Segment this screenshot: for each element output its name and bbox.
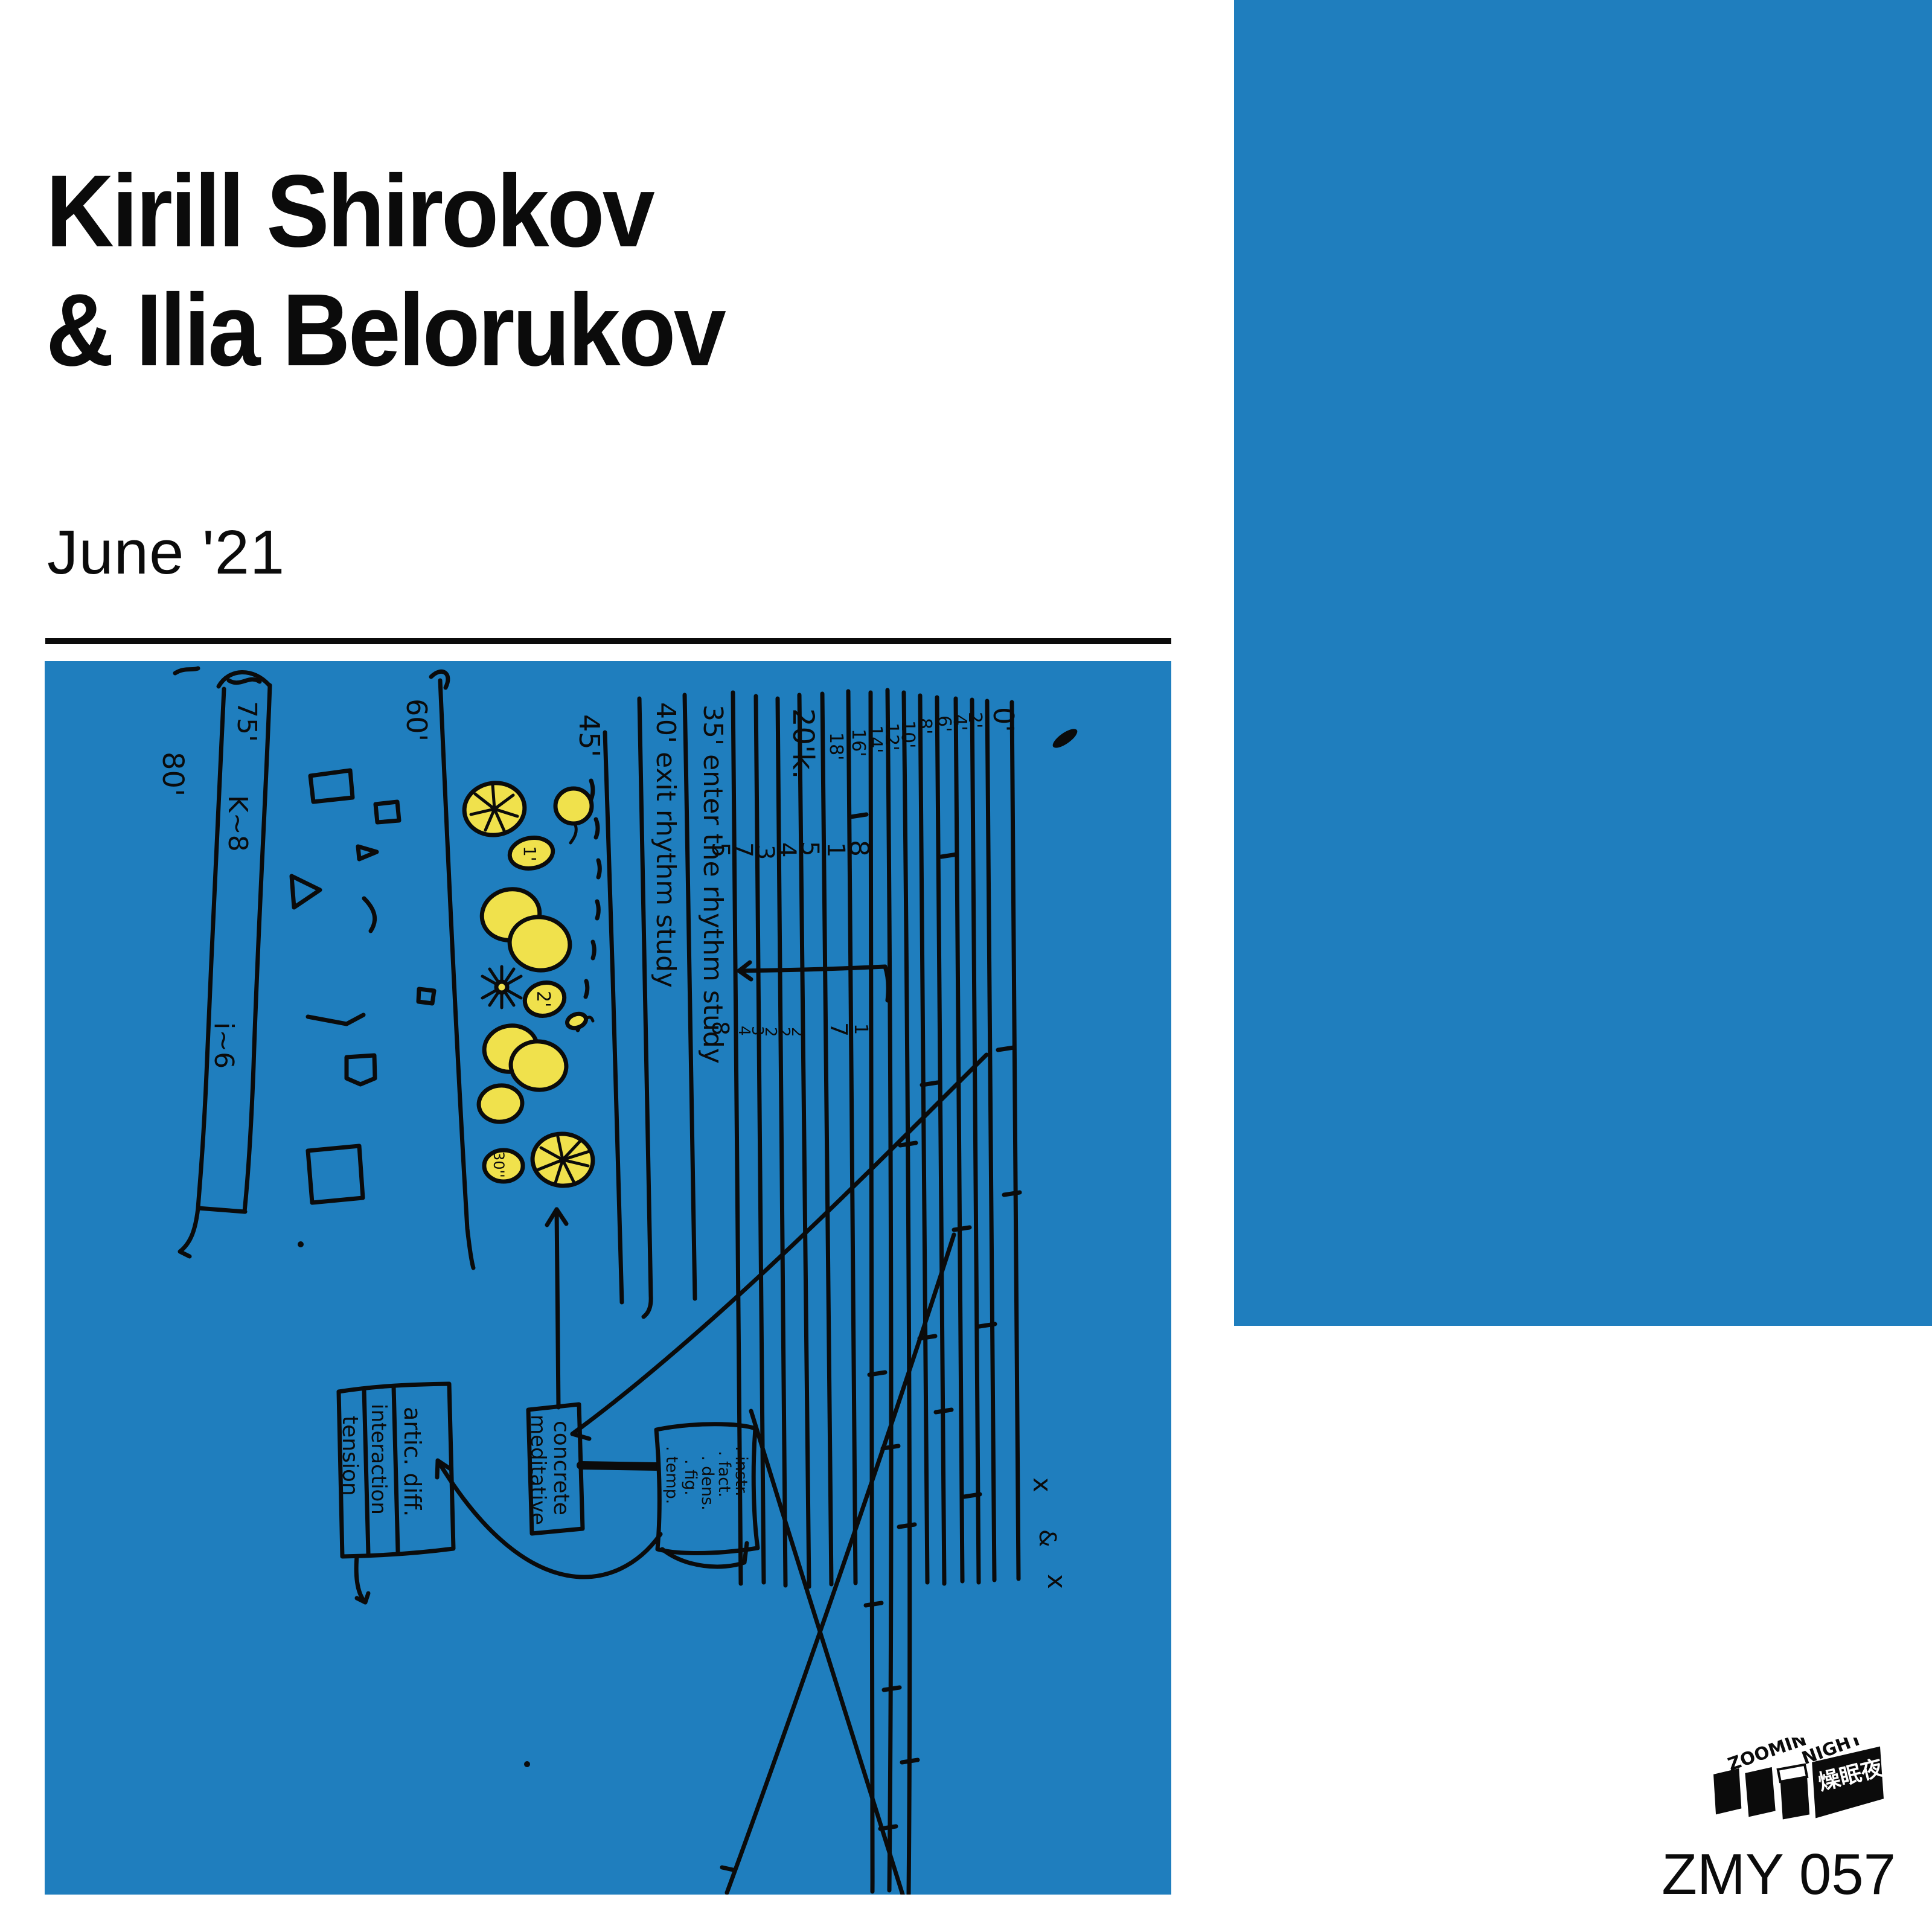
box-label-interaction: interaction	[366, 1404, 391, 1515]
shape-square-big	[308, 1146, 363, 1203]
label-i6: i~6	[208, 1022, 239, 1069]
shape-rect	[310, 770, 353, 802]
dashed-arc	[598, 860, 600, 877]
string-line-long	[871, 693, 874, 1892]
tick	[964, 1494, 980, 1497]
dashed-arc	[597, 901, 598, 918]
tick	[866, 1603, 881, 1605]
blob-label-1: 1'	[520, 846, 540, 862]
label-35-enter: 35' enter the rhythm study	[697, 705, 728, 1064]
string-line	[937, 697, 944, 1584]
artist-line2: & Ilia Belorukov	[46, 271, 724, 390]
logo-block-1	[1713, 1768, 1741, 1815]
balloon-tail	[571, 824, 576, 843]
stroke	[198, 689, 224, 1208]
shape-square	[376, 802, 399, 822]
blob-balloon	[555, 788, 592, 824]
tick	[899, 1524, 915, 1527]
artist-line1: Kirill Shirokov	[46, 152, 724, 271]
dot	[298, 1241, 304, 1247]
dashed-arc	[586, 981, 587, 997]
tick	[902, 1760, 918, 1762]
horizontal-arrow	[739, 967, 885, 971]
string-line-long	[888, 690, 891, 1890]
album-cover: { "colors": {"background":"#FFFFFF","blu…	[0, 0, 1932, 1932]
label-20k: 20'k.	[786, 708, 820, 779]
shape-crescent	[364, 898, 375, 931]
artist-title: Kirill Shirokov & Ilia Belorukov	[46, 152, 724, 390]
string-top-label: 2'	[964, 712, 985, 728]
tick	[979, 1324, 995, 1326]
box-label-instr: . instr.	[732, 1446, 750, 1497]
section-line	[639, 699, 651, 1317]
asterisk-core	[496, 982, 507, 993]
shape-chevron	[308, 1015, 363, 1024]
string-line	[799, 695, 809, 1587]
string-line	[848, 691, 856, 1583]
blob-plain	[477, 1083, 524, 1124]
blob-pair2b	[508, 1038, 569, 1092]
string-top-label: 18'	[825, 732, 846, 760]
section-line-40	[685, 695, 695, 1299]
tick	[900, 1143, 916, 1145]
catalog-number: ZMY 057	[1630, 1841, 1896, 1908]
score-ink-strokes	[175, 668, 1020, 1895]
box-label-fig: . fig.	[681, 1459, 700, 1495]
string-line-long	[904, 693, 910, 1894]
stroke	[180, 1208, 198, 1256]
label-60: 60'	[400, 699, 433, 741]
dot	[524, 1761, 530, 1767]
string-line	[1012, 702, 1019, 1579]
thick-connector	[581, 1465, 656, 1467]
stroke	[885, 967, 888, 1000]
annotation-amp: &	[1034, 1529, 1061, 1547]
vertical-arrow	[557, 1209, 558, 1407]
zoomin-night-logo: 燥眠夜 ZOOMIN' NIGHT	[1712, 1738, 1884, 1823]
stroke	[229, 679, 260, 682]
box-label-artic: artic. diff.	[399, 1407, 426, 1517]
shape-triangle-small	[358, 846, 377, 859]
annotation-x2: x	[1042, 1574, 1072, 1589]
box-label-fact: . fact.	[715, 1451, 734, 1497]
label-45: 45'	[573, 714, 606, 757]
stroke	[245, 685, 270, 1212]
label-40-exit: 40' exit rhythm study	[650, 702, 681, 988]
separator-line	[45, 638, 1171, 644]
string-number: 8	[843, 840, 874, 857]
blob-label-30: 30''	[490, 1151, 507, 1178]
tick	[998, 1048, 1014, 1050]
dashed-arc	[596, 819, 598, 837]
blob-label-2: 2'	[533, 991, 554, 1007]
string-line	[778, 699, 785, 1585]
tick	[851, 814, 866, 817]
blob-tiny	[565, 1011, 588, 1031]
tick	[941, 854, 957, 857]
string-number2: 7	[825, 1022, 852, 1037]
box-label-dens: . dens.	[698, 1456, 717, 1511]
string-top-label: 8'	[914, 718, 935, 734]
label-75: 75'	[231, 701, 262, 742]
stroke	[175, 668, 198, 673]
string-number: 5	[796, 841, 824, 856]
box-label-temp: . temp.	[662, 1446, 681, 1504]
score-artwork-panel: 80' 75' K~8 i~6 60' 45' 40' exit rhythm …	[45, 661, 1171, 1895]
stroke	[198, 1208, 245, 1212]
dash	[722, 1867, 733, 1870]
release-date: June '21	[47, 517, 285, 588]
box-label-tension: tension	[337, 1416, 362, 1496]
tick	[936, 1410, 952, 1412]
string-line	[822, 694, 831, 1584]
dashed-arc	[593, 942, 594, 958]
box-label-concrete: concrete	[549, 1421, 574, 1515]
graphic-score: 80' 75' K~8 i~6 60' 45' 40' exit rhythm …	[45, 661, 1171, 1895]
logo-block-3-front	[1780, 1777, 1809, 1819]
yellow-blobs	[461, 779, 595, 1188]
label-80: 80'	[156, 752, 190, 796]
tick	[869, 1372, 885, 1375]
box-label-meditative: meditative	[526, 1415, 550, 1525]
box-divider	[394, 1387, 398, 1552]
string-line	[987, 701, 994, 1580]
score-labels: 80' 75' K~8 i~6 60' 45' 40' exit rhythm …	[156, 699, 1072, 1589]
shape-square-tiny	[418, 989, 434, 1003]
string-number2: 2	[788, 1027, 806, 1037]
logo-block-2	[1745, 1767, 1775, 1817]
string-line	[972, 700, 979, 1582]
label-k8: K~8	[222, 795, 253, 852]
hook-arrow	[356, 1556, 365, 1602]
string-line	[956, 699, 962, 1581]
tick	[954, 1227, 970, 1230]
diagonal-line	[751, 1411, 903, 1895]
tick	[1004, 1192, 1020, 1195]
string-top-label: 0'	[987, 707, 1020, 732]
ink-blob	[1050, 726, 1080, 751]
annotation-x1: x	[1028, 1477, 1057, 1492]
string-number2: 8	[707, 1021, 734, 1035]
section-line-45	[605, 732, 622, 1302]
blue-rectangle	[1234, 0, 1932, 1326]
section-line-60	[440, 680, 473, 1268]
string-line	[920, 696, 927, 1582]
string-number2: 1	[850, 1023, 871, 1035]
shape-pentagon	[347, 1055, 375, 1084]
tick	[922, 1083, 938, 1085]
shape-triangle	[292, 876, 320, 907]
tick	[884, 1687, 900, 1690]
